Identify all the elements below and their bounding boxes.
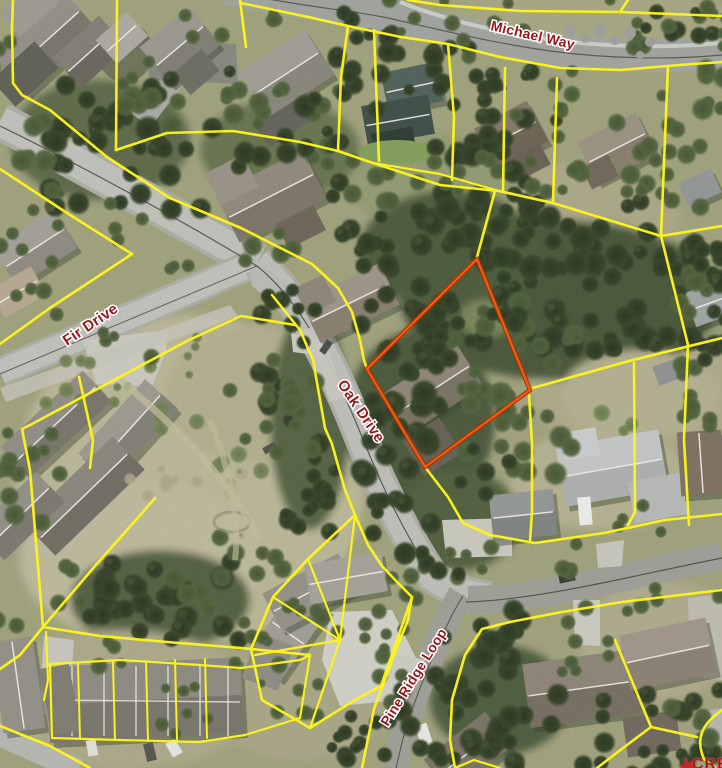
svg-text:CREN: CREN: [692, 756, 722, 768]
